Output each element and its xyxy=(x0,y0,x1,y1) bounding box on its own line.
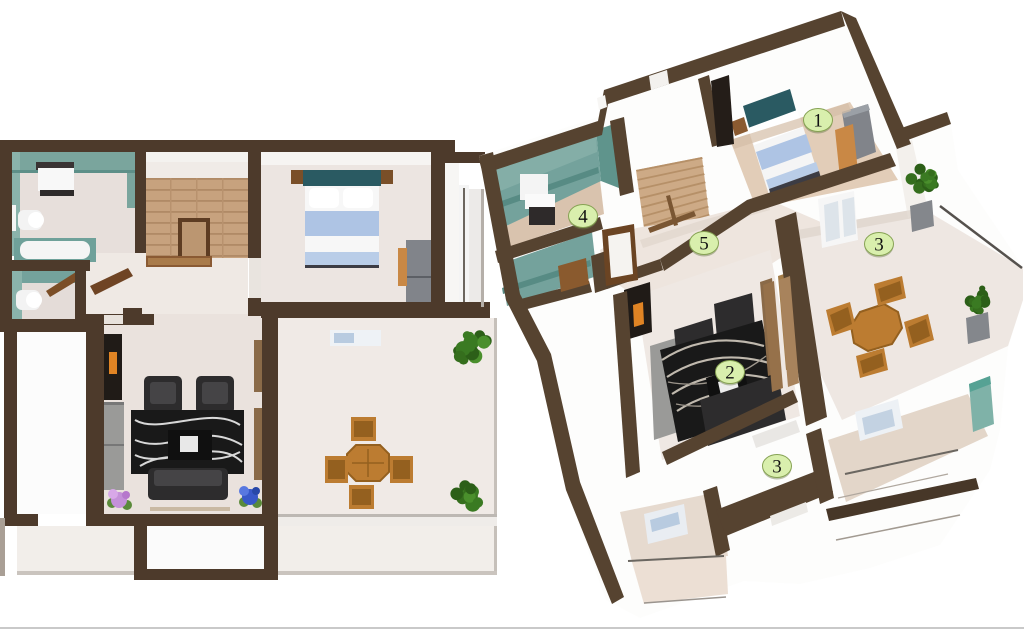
svg-text:3: 3 xyxy=(772,457,782,478)
svg-text:5: 5 xyxy=(699,234,709,255)
svg-text:3: 3 xyxy=(874,235,884,256)
svg-text:2: 2 xyxy=(725,363,735,384)
svg-text:4: 4 xyxy=(578,207,588,228)
svg-text:1: 1 xyxy=(813,111,823,132)
